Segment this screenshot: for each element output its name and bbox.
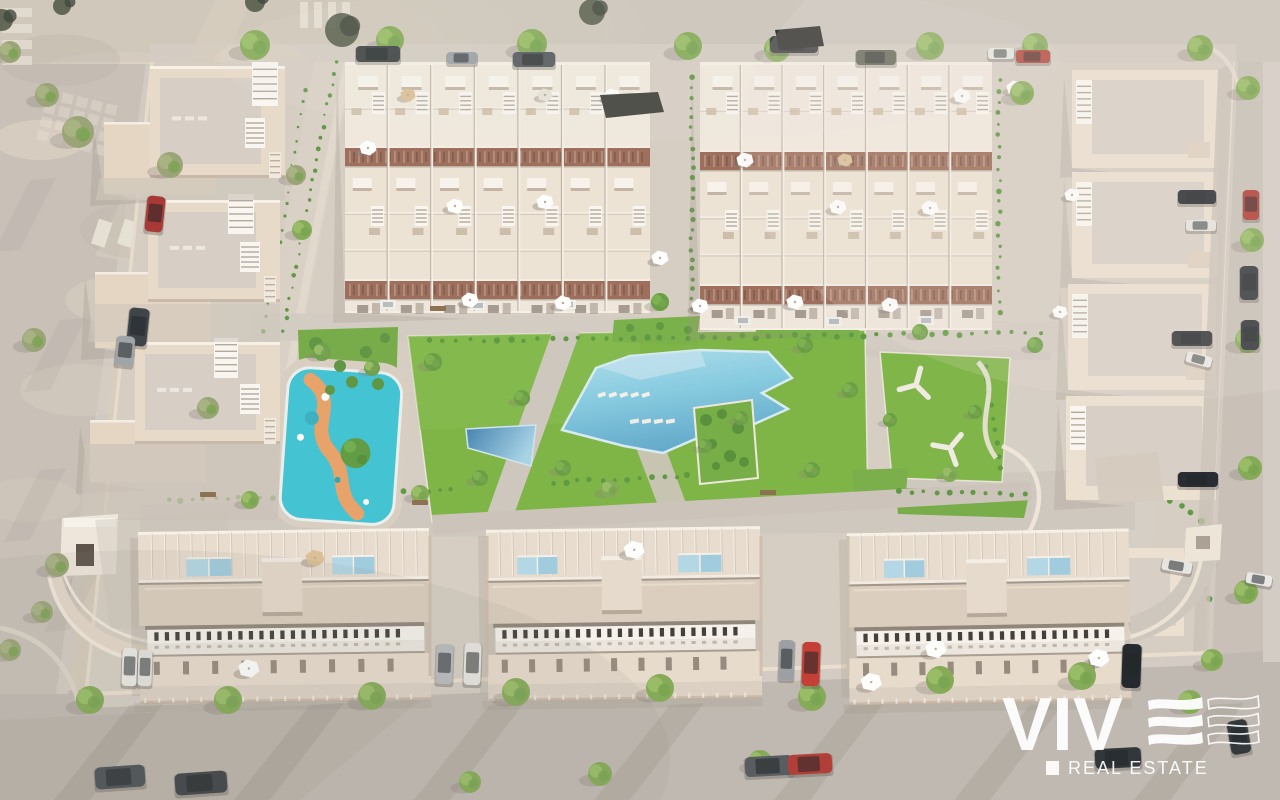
svg-text:REAL ESTATE: REAL ESTATE — [1068, 758, 1209, 778]
svg-text:VIV: VIV — [1002, 682, 1123, 766]
